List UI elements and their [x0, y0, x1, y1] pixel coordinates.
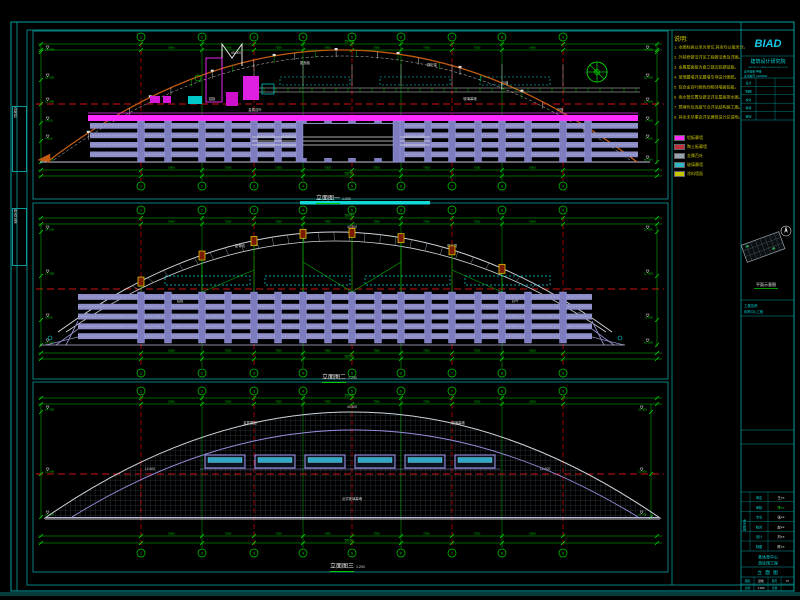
louver-column	[225, 292, 232, 343]
level-label: 9.000	[645, 119, 653, 123]
grid-bubble-label: 1	[140, 551, 142, 555]
catwalk-box	[365, 276, 450, 285]
note-line: 7. 预埋件及连接节点详见结构施工图。	[674, 105, 740, 110]
truss-node	[199, 251, 205, 260]
grid-bubble-label: 8	[501, 371, 503, 375]
level-label: ±0.000	[644, 158, 653, 162]
louver-column	[525, 292, 532, 343]
dim-span-label: 7500	[373, 349, 380, 353]
dim-span-label: 5000	[529, 400, 536, 404]
louver-column	[525, 121, 532, 162]
view3-caption: 立面图三1:200	[330, 555, 376, 573]
level-label: 24.000	[638, 408, 648, 412]
sig-label: 制图	[756, 544, 762, 549]
louver-column	[449, 292, 456, 343]
dim-span-label: 7500	[225, 220, 232, 224]
roof-node	[397, 52, 400, 54]
dim-span-label: 5000	[168, 532, 175, 536]
dome-window-glass	[358, 458, 392, 463]
level-label: 12.600	[45, 470, 55, 474]
dim-total-label: 55000	[345, 40, 354, 44]
roof-node	[87, 131, 90, 133]
louver-column	[585, 121, 592, 162]
dim-span-label: 7500	[225, 166, 232, 170]
equipment-box	[163, 96, 171, 103]
truss-node	[138, 277, 144, 286]
louver-column	[475, 121, 482, 162]
level-label: 4.500	[45, 316, 53, 320]
catwalk-box	[280, 77, 350, 85]
grid-bubble-label: 4	[302, 389, 304, 393]
table-label: 制图	[745, 88, 751, 93]
roof-node	[459, 66, 462, 68]
roof-hatch	[334, 232, 335, 241]
louver-column	[251, 292, 258, 343]
truss-node	[300, 229, 306, 238]
grid-bubble-label: 7	[451, 371, 453, 375]
dome-window-glass	[308, 458, 342, 463]
dim-span-label: 7500	[324, 166, 331, 170]
grid-bubble-label: 2	[201, 208, 203, 212]
legend-item: 玻璃幕墙	[674, 156, 740, 165]
dim-span-label: 7500	[373, 400, 380, 404]
grid-bubble-label: 9	[562, 208, 564, 212]
grid-bubble-label: 1	[140, 371, 142, 375]
dome-window-glass	[208, 458, 242, 463]
dim-span-label: 7500	[324, 532, 331, 536]
catwalk-box	[265, 276, 350, 285]
grid-bubble-label: 8	[501, 551, 503, 555]
grid-bubble-label: 1	[140, 389, 142, 393]
roof-hatch	[163, 270, 168, 276]
truss-node	[449, 246, 455, 255]
grid-bubble-label: 9	[562, 389, 564, 393]
level-label: 18.000	[644, 76, 654, 80]
level-label: 12.600	[45, 100, 55, 104]
dim-span-label: 5000	[168, 349, 175, 353]
truss-node	[499, 264, 505, 273]
roof-node	[211, 70, 214, 72]
grid-bubble-label: 9	[562, 35, 564, 39]
info-value: 建施	[758, 579, 764, 583]
roof-brace	[303, 262, 352, 292]
dim-span-label: 7500	[474, 532, 481, 536]
discipline-label: 建筑专业	[742, 519, 747, 531]
equipment-box	[226, 92, 238, 106]
dim-total-label: 55000	[345, 214, 354, 218]
table-label: 审核	[745, 105, 751, 110]
dim-span-label: 5000	[529, 46, 536, 50]
grid-bubble-label: 7	[451, 551, 453, 555]
catwalk-box	[380, 77, 450, 85]
truss-node	[251, 237, 257, 246]
elevation-views: 1122334455667788995500050007500750075007…	[36, 33, 664, 557]
grid-bubble-label: 2	[201, 35, 203, 39]
dim-total-label: 55000	[345, 394, 354, 398]
level-label: 4.500	[645, 316, 653, 320]
dim-span-label: 7500	[373, 46, 380, 50]
dim-span-label: 7500	[474, 166, 481, 170]
dim-span-label: 7500	[373, 166, 380, 170]
sig-value: 刘××	[777, 534, 784, 539]
louver-column	[425, 121, 432, 162]
grid-bubble-label: 3	[253, 208, 255, 212]
grid-bubble-label: 1	[140, 208, 142, 212]
dim-span-label: 7500	[373, 532, 380, 536]
level-label: 24.000	[644, 228, 654, 232]
roof-node	[520, 90, 523, 92]
dim-span-label: 5000	[529, 220, 536, 224]
annotation: 屋面板	[300, 60, 311, 65]
legend-swatch	[674, 171, 685, 177]
dim-span-label: 7500	[275, 220, 282, 224]
roof-hatch	[410, 240, 411, 248]
dim-span-label: 7500	[324, 400, 331, 404]
level-label: 4.500	[645, 137, 653, 141]
dim-span-label: 7500	[474, 400, 481, 404]
grid-bubble-label: 4	[302, 551, 304, 555]
building-elevation-3	[45, 412, 660, 520]
dome-window-glass	[408, 458, 442, 463]
dim-span-label: 7500	[324, 349, 331, 353]
company-logo: BIAD	[755, 38, 782, 50]
grid-bubble-label: 6	[400, 184, 402, 188]
grid-bubble-label: 9	[562, 551, 564, 555]
dim-span-label: 5000	[529, 532, 536, 536]
dim-span-label: 5000	[168, 46, 175, 50]
louver-column	[165, 292, 172, 343]
annotation: 金属百叶	[248, 107, 262, 112]
dim-span-label: 7500	[474, 46, 481, 50]
grid-bubble-label: 7	[451, 208, 453, 212]
dim-span-label: 7500	[423, 166, 430, 170]
louver-column	[275, 292, 282, 343]
equipment-box	[150, 96, 160, 103]
louver-column	[349, 292, 356, 343]
section-value: 体育中心工程	[744, 309, 764, 314]
sig-value: 李××	[777, 505, 784, 510]
note-line: 4. 玻璃幕墙详见幕墙专项设计图纸。	[674, 75, 740, 80]
level-label: ±0.000	[644, 341, 653, 345]
view-1-grid: 1122334455667788995500050007500750075007…	[36, 33, 664, 190]
dim-span-label: 7500	[423, 46, 430, 50]
roof-hatch	[287, 235, 289, 244]
sig-value: 赵××	[777, 524, 784, 529]
grid-bubble-label: 8	[501, 35, 503, 39]
cert-row: 证书等级 甲级	[744, 70, 762, 74]
legend-label: 陶土板幕墙	[687, 144, 707, 150]
grid-bubble-label: 8	[501, 208, 503, 212]
info-label: 日期	[772, 586, 778, 590]
grid-bubble-label: 2	[201, 551, 203, 555]
grid-bubble-label: 4	[302, 371, 304, 375]
louver-column	[300, 292, 307, 343]
sig-value: 王××	[777, 496, 784, 500]
note-line: 8. 其余未尽事宜详见建筑设计总说明。	[674, 115, 740, 120]
truss-node	[349, 228, 355, 237]
dim-span-label: 5000	[168, 400, 175, 404]
dim-span-label: 7500	[324, 46, 331, 50]
legend-label: 涂料墙面	[687, 171, 703, 177]
note-line: 1. 本图标高以米为单位,其余均以毫米计。	[674, 45, 740, 50]
dim-span-label: 5000	[529, 349, 536, 353]
grid-bubble-label: 6	[400, 208, 402, 212]
section-label: 工程名称	[744, 303, 758, 308]
dim-span-label: 7500	[474, 349, 481, 353]
roof-hatch	[577, 312, 582, 314]
roof-hatch	[440, 247, 442, 255]
sig-label: 专业	[756, 515, 762, 520]
key-plan	[741, 232, 785, 263]
roof-hatch	[148, 278, 153, 283]
level-label: 12.600	[45, 272, 55, 276]
level-label: 12.600	[638, 470, 648, 474]
project-name-2: 游泳馆工程	[758, 560, 778, 566]
sig-label: 审核	[756, 505, 763, 510]
louver-column	[393, 121, 400, 162]
dim-total-label: 55000	[345, 355, 354, 359]
view1-title: 立面图一	[316, 196, 340, 204]
louver-column	[449, 121, 456, 162]
legend-item: 涂料墙面	[674, 165, 740, 174]
company-name: 建筑设计研究院	[750, 58, 785, 65]
roof-hatch	[516, 277, 520, 282]
level-label: 18.000	[45, 76, 55, 80]
dim-span-label: 5000	[168, 220, 175, 224]
view2-scale: 1:200	[348, 376, 357, 380]
end-detail	[618, 336, 622, 340]
louver-column	[296, 121, 303, 162]
annotation: 44.500	[347, 405, 357, 409]
legend-list: 铝板幕墙陶土板幕墙金属百叶玻璃幕墙涂料墙面	[674, 129, 740, 174]
note-line: 5. 铝合金百叶颜色同相邻墙面铝板。	[674, 85, 740, 90]
louver-column	[325, 292, 332, 343]
dim-span-label: 7500	[275, 349, 282, 353]
legend-item: 陶土板幕墙	[674, 138, 740, 147]
dim-span-label: 7500	[225, 349, 232, 353]
roof-hatch	[272, 237, 274, 246]
roof-brace	[352, 262, 401, 292]
level-label: 24.000	[45, 408, 55, 412]
bottom-shadow	[0, 592, 800, 596]
annotation: 玻璃幕墙	[463, 96, 477, 101]
roof-hatch	[179, 264, 184, 270]
note-line: 3. 金属屋面板为直立锁边铝镁锰板。	[674, 65, 740, 70]
grid-bubble-label: 6	[400, 35, 402, 39]
louver-column	[138, 121, 145, 162]
view3-title: 立面图三	[330, 564, 354, 572]
grid-bubble-label: 3	[253, 184, 255, 188]
info-value: 07	[786, 579, 790, 583]
roof-hatch	[380, 235, 381, 244]
legend-label: 玻璃幕墙	[687, 162, 703, 168]
roof-hatch	[210, 252, 214, 259]
roof-hatch	[225, 248, 228, 256]
dim-span-label: 7500	[275, 400, 282, 404]
equipment-frame	[206, 58, 222, 102]
info-label: 图号	[772, 579, 778, 583]
info-label: 比例	[745, 586, 751, 590]
notes-list: 1. 本图标高以米为单位,其余均以毫米计。2. 外装修做法详见工程做法表及详图。…	[674, 45, 740, 125]
grid-bubble-label: 2	[201, 184, 203, 188]
sig-label: 设计	[756, 534, 763, 539]
project-name-1: 某体育中心	[758, 554, 778, 560]
building-elevation-2	[40, 228, 625, 345]
grid-bubble-label: 8	[501, 389, 503, 393]
legend-item: 金属百叶	[674, 147, 740, 156]
table-label: 审定	[745, 114, 751, 119]
grid-bubble-label: 6	[400, 389, 402, 393]
end-detail	[48, 336, 52, 340]
table-label: 设计	[745, 80, 751, 85]
level-label: 24.000	[45, 48, 55, 52]
louver-column	[398, 292, 405, 343]
grid-bubble-label: 7	[451, 184, 453, 188]
grid-bubble-label: 6	[400, 551, 402, 555]
grid-bubble-label: 6	[400, 371, 402, 375]
dim-span-label: 7500	[225, 532, 232, 536]
dim-span-label: 7500	[275, 532, 282, 536]
building-elevation-1	[38, 44, 650, 162]
louver-column	[560, 121, 567, 162]
grid-bubble-label: 3	[253, 35, 255, 39]
legend-label: 铝板幕墙	[687, 135, 703, 141]
info-label: 图别	[745, 579, 751, 583]
sheet-title: 立 面 图	[757, 569, 778, 576]
equipment-box-cyan	[188, 96, 202, 104]
grid-bubble-label: 2	[201, 371, 203, 375]
keyplan-caption: 平面示意图	[756, 281, 776, 287]
dim-span-label: 7500	[474, 220, 481, 224]
binding-box-1-text: 会签栏	[13, 107, 18, 118]
magenta-band	[88, 115, 638, 121]
louver-column	[251, 121, 258, 162]
louver-column	[560, 292, 567, 343]
louver-column	[425, 292, 432, 343]
sig-label: 审定	[756, 495, 763, 500]
louver-column	[275, 121, 282, 162]
dim-total-label: 55000	[345, 172, 354, 176]
grid-bubble-label: 5	[351, 208, 353, 212]
roof-hatch	[395, 237, 396, 246]
equipment-box	[243, 76, 259, 100]
sig-value: 张××	[777, 515, 784, 520]
grid-bubble-label: 2	[201, 389, 203, 393]
dim-span-label: 7500	[423, 400, 430, 404]
note-line: 2. 外装修做法详见工程做法表及详图。	[674, 55, 740, 60]
grid-bubble-label: 1	[140, 35, 142, 39]
view1-caption: 立面图一1:200	[316, 187, 362, 205]
grid-bubble-label: 8	[501, 184, 503, 188]
arc-end-arrow	[38, 154, 50, 162]
north-needle	[784, 226, 788, 233]
level-label: 12.600	[644, 100, 654, 104]
louver-column	[499, 292, 506, 343]
louver-column	[199, 121, 206, 162]
sig-label: 校对	[756, 524, 763, 529]
grid-bubble-label: 3	[253, 389, 255, 393]
louver-column	[138, 292, 145, 343]
dim-span-label: 5000	[168, 166, 175, 170]
truss-node	[398, 234, 404, 243]
roof-hatch	[486, 263, 489, 269]
grid-bubble-label: 4	[302, 35, 304, 39]
grid-bubble-label: 9	[562, 184, 564, 188]
louver-column	[475, 292, 482, 343]
roof-node	[273, 54, 276, 56]
catwalk-box	[465, 276, 550, 285]
level-label: 12.600	[644, 272, 654, 276]
level-label: 24.000	[644, 48, 654, 52]
grid-bubble-label: 9	[562, 371, 564, 375]
legend-label: 金属百叶	[687, 153, 703, 159]
dim-span-label: 5000	[529, 166, 536, 170]
annotation: 铝板	[209, 96, 216, 101]
roof-hatch	[455, 252, 458, 259]
cert-row: 证书编号 A100000	[744, 74, 768, 78]
binding-box-2-text: 修改记录	[13, 209, 18, 223]
louver-column	[165, 121, 172, 162]
title-block: BIAD建筑设计研究院ARCHITECTURAL DESIGN INSTITUT…	[741, 38, 794, 591]
grid-bubble-label: 3	[253, 371, 255, 375]
grid-bubble-label: 3	[253, 551, 255, 555]
legend-item: 铝板幕墙	[674, 129, 740, 138]
roof-hatch	[471, 257, 474, 264]
view3-scale: 1:200	[356, 565, 365, 569]
grid-bubble-label: 4	[302, 184, 304, 188]
roof-hatch	[194, 258, 198, 265]
dim-span-label: 7500	[423, 220, 430, 224]
dim-span-label: 7500	[423, 349, 430, 353]
binding-box-1: 会签栏	[12, 106, 27, 172]
dim-span-label: 7500	[324, 220, 331, 224]
louver-column	[375, 292, 382, 343]
level-label: 9.000	[45, 119, 53, 123]
dim-span-label: 7500	[275, 46, 282, 50]
roof-node	[335, 48, 338, 50]
louver-column	[199, 292, 206, 343]
binding-box-2: 修改记录	[12, 208, 27, 266]
dome-window-glass	[458, 458, 492, 463]
notes-panel: 说明: 1. 本图标高以米为单位,其余均以毫米计。2. 外装修做法详见工程做法表…	[674, 34, 740, 174]
grid-bubble-label: 1	[140, 184, 142, 188]
grid-bubble-label: 4	[302, 208, 304, 212]
note-line: 6. 雨水管位置及做法详见屋面排水图。	[674, 95, 740, 100]
dim-span-label: 7500	[373, 220, 380, 224]
level-label: 4.500	[45, 137, 53, 141]
level-label: 24.000	[45, 228, 55, 232]
notes-title: 说明:	[674, 34, 740, 43]
roof-hatch	[425, 243, 427, 251]
dome-window-glass	[258, 458, 292, 463]
grid-bubble-label: 7	[451, 35, 453, 39]
info-value: 1:200	[758, 586, 765, 590]
dome-mesh	[45, 412, 660, 518]
table-label: 校对	[745, 97, 751, 102]
louver-column	[225, 121, 232, 162]
dim-total-label: 55000	[345, 539, 354, 543]
roof-hatch	[318, 232, 319, 241]
grid-bubble-label: 7	[451, 389, 453, 393]
dim-span-label: 7500	[275, 166, 282, 170]
cad-sheet-page: 1122334455667788995500050007500750075007…	[0, 0, 800, 600]
view1-scale: 1:200	[342, 197, 351, 201]
dim-span-label: 7500	[423, 532, 430, 536]
sig-value: 陈××	[777, 544, 784, 549]
louver-column	[499, 121, 506, 162]
view2-caption: 立面图二1:200	[322, 366, 368, 384]
view2-title: 立面图二	[322, 375, 346, 383]
